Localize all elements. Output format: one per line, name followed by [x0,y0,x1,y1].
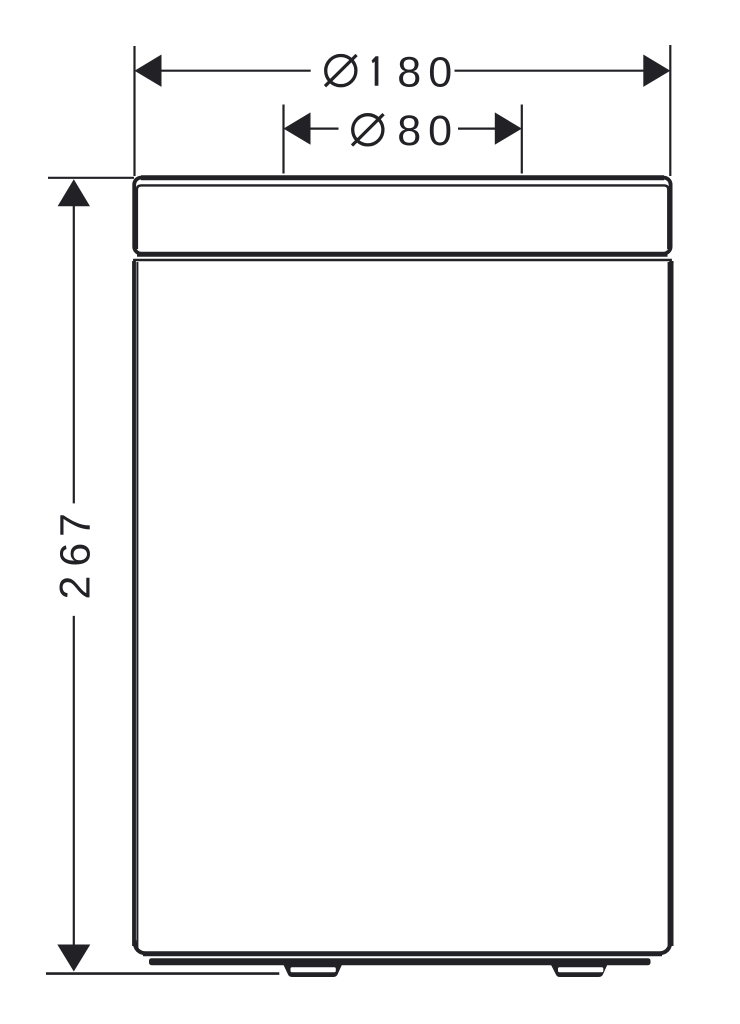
svg-text:2: 2 [51,576,99,600]
svg-text:7: 7 [51,513,99,537]
svg-text:6: 6 [51,543,99,567]
